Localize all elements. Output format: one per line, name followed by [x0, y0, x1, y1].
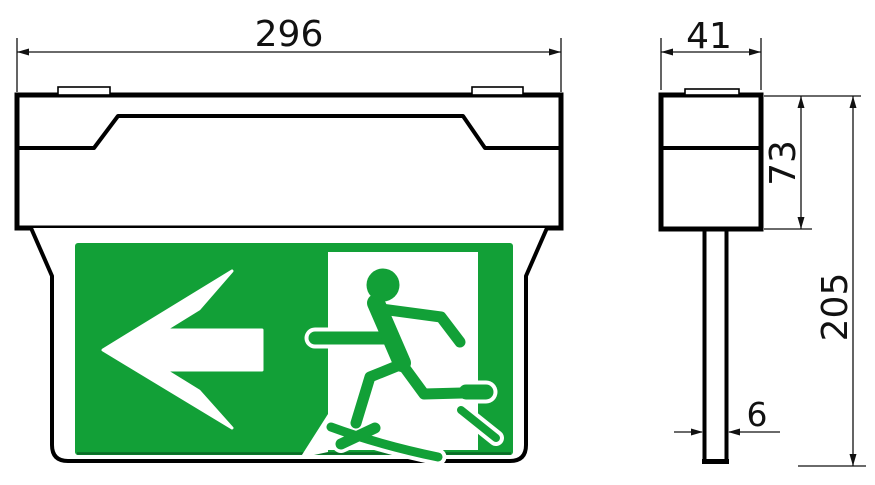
dim-label-total-height: 205 — [815, 273, 856, 342]
housing-side — [661, 89, 761, 229]
dim-label-front-width: 296 — [255, 14, 324, 55]
mounting-tab-left — [58, 87, 110, 95]
drawing-canvas: 296 — [0, 0, 875, 485]
front-view: 296 — [17, 14, 561, 461]
side-view: 41 73 205 — [661, 16, 866, 466]
housing-side-outline — [661, 95, 761, 229]
head — [367, 269, 400, 302]
arrowhead-down-icon — [798, 217, 805, 229]
arrowhead-right-icon — [549, 49, 561, 56]
dim-label-side-depth: 41 — [686, 16, 732, 57]
arrowhead-down-icon — [850, 454, 857, 466]
housing-front — [17, 87, 561, 228]
mounting-tab-side — [685, 89, 739, 95]
arrowhead-right-icon — [749, 49, 761, 56]
exit-sign-panel — [75, 243, 513, 458]
dimension-drawing: 296 — [0, 0, 875, 485]
blade-side — [702, 229, 729, 462]
arrowhead-left-icon — [728, 429, 740, 436]
mounting-tab-right — [472, 87, 523, 95]
arrowhead-up-icon — [850, 96, 857, 108]
dim-label-blade-thickness: 6 — [747, 395, 768, 434]
arrowhead-left-icon — [661, 49, 673, 56]
arrowhead-right-icon — [691, 429, 703, 436]
blade-front — [31, 228, 547, 461]
arrowhead-up-icon — [798, 96, 805, 108]
dim-label-housing-height: 73 — [763, 140, 804, 186]
arrowhead-left-icon — [17, 49, 29, 56]
